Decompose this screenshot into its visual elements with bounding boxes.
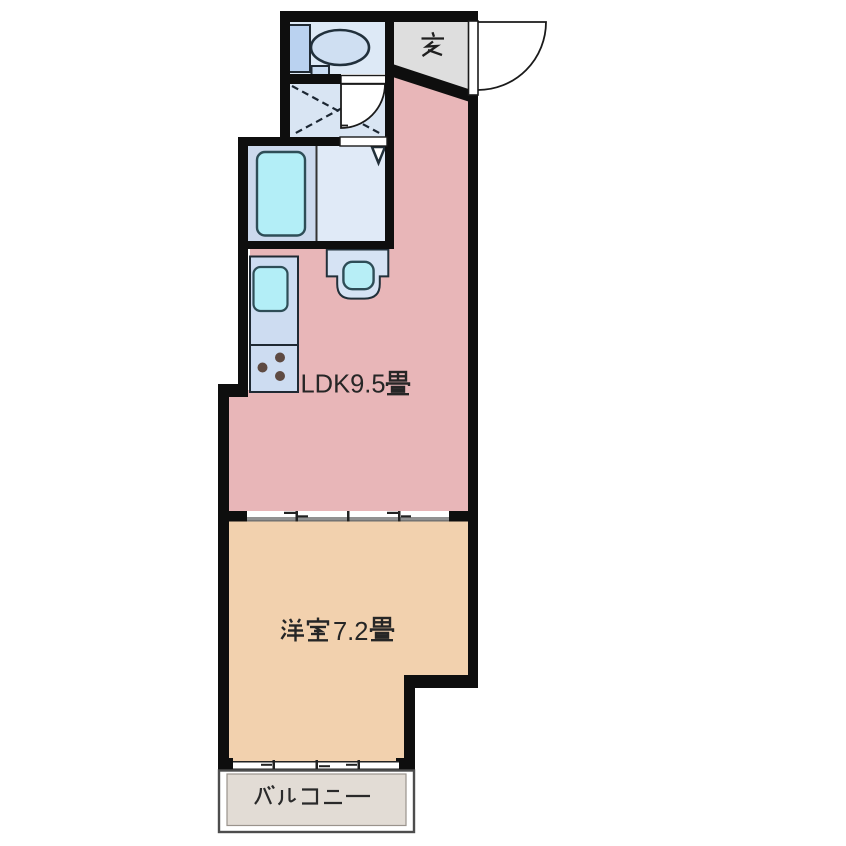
- svg-text:7.2: 7.2: [333, 618, 368, 646]
- svg-text:LDK9.5: LDK9.5: [301, 371, 386, 399]
